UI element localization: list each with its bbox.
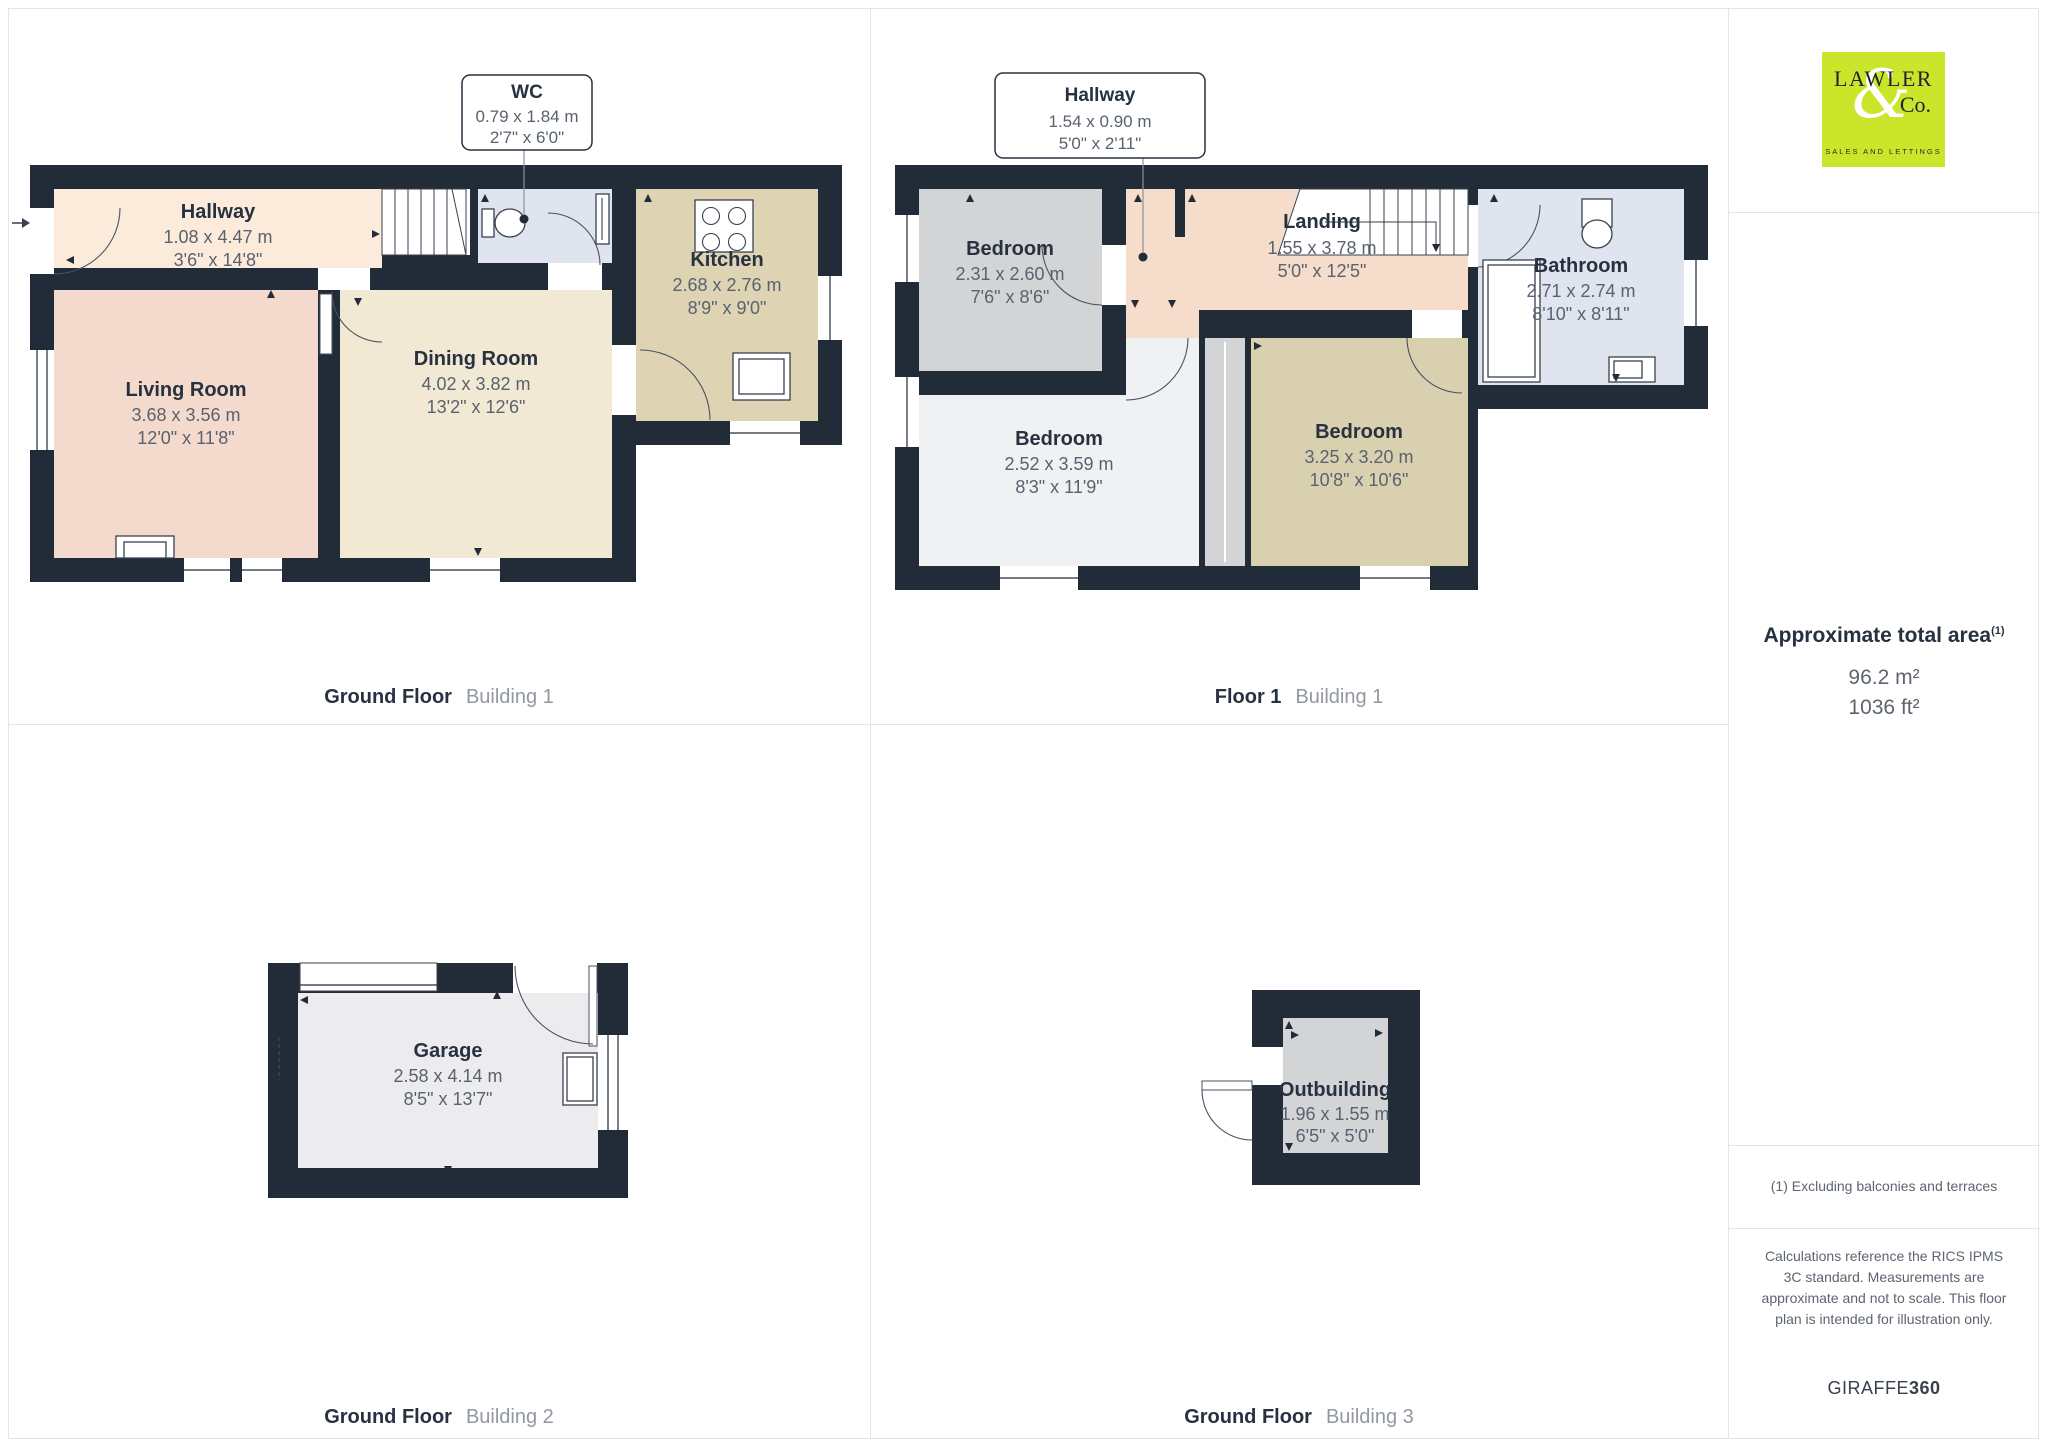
caption-building-label: Building 2 <box>466 1406 554 1429</box>
bathroom-door-opening <box>1468 205 1478 267</box>
divider <box>1728 1145 2040 1146</box>
room-metric: 2.58 x 4.14 m <box>393 1066 502 1086</box>
room-name: Living Room <box>125 379 246 401</box>
logo-co: Co. <box>1900 92 1931 118</box>
room-imperial: 8'9" x 9'0" <box>688 298 767 318</box>
plan-floor1-building1: Bedroom 2.31 x 2.60 m 7'6" x 8'6" Landin… <box>870 8 1728 724</box>
lawler-logo: & LAWLER Co. SALES AND LETTINGS <box>1822 52 1945 167</box>
divider <box>1728 1228 2040 1229</box>
window <box>30 350 54 450</box>
fixtures <box>563 1053 597 1105</box>
room-imperial: 13'2" x 12'6" <box>427 397 526 417</box>
room-imperial: 3'6" x 14'8" <box>174 250 263 270</box>
plan-ground-floor-building1: Hallway 1.08 x 4.47 m 3'6" x 14'8" Livin… <box>8 8 870 724</box>
disclaimer-text: Calculations reference the RICS IPMS 3C … <box>1758 1246 2010 1330</box>
room-name: Bedroom <box>1015 428 1103 450</box>
bedroom-door-nook <box>1126 338 1199 395</box>
room-metric: 2.52 x 3.59 m <box>1004 454 1113 474</box>
doors <box>1202 1081 1252 1140</box>
room-imperial: 6'5" x 5'0" <box>1296 1126 1375 1146</box>
divider <box>1728 212 2040 213</box>
callout-imperial: 2'7" x 6'0" <box>490 128 564 147</box>
window <box>598 1035 628 1130</box>
room-imperial: 5'0" x 12'5" <box>1278 261 1367 281</box>
room-metric: 2.31 x 2.60 m <box>955 264 1064 284</box>
room-name: Kitchen <box>690 249 763 271</box>
room-name: Bedroom <box>966 238 1054 260</box>
room-imperial: 8'5" x 13'7" <box>404 1089 493 1109</box>
caption-ground-floor-b1: Ground Floor Building 1 <box>8 686 870 709</box>
plan-ground-floor-building3: Outbuilding 1.96 x 1.55 m 6'5" x 5'0" <box>870 724 1728 1440</box>
caption-building-label: Building 1 <box>1295 686 1383 709</box>
callout-imperial: 5'0" x 2'11" <box>1059 134 1142 153</box>
callout-metric: 0.79 x 1.84 m <box>475 107 578 126</box>
callout-name: WC <box>511 82 543 103</box>
fireplace-icon <box>124 542 166 558</box>
door-leaf <box>320 294 332 354</box>
total-area-heading: Approximate total area(1) <box>1728 624 2040 648</box>
room-imperial: 8'3" x 11'9" <box>1015 477 1102 497</box>
caption-floor-label: Ground Floor <box>1184 1406 1312 1429</box>
caption-floor1-b1: Floor 1 Building 1 <box>870 686 1728 709</box>
sidebar: & LAWLER Co. SALES AND LETTINGS Approxim… <box>1728 8 2040 1439</box>
room-name: Bedroom <box>1315 421 1403 443</box>
total-area-m2: 96.2 m² <box>1728 666 2040 690</box>
caption-floor-label: Ground Floor <box>324 1406 452 1429</box>
room-metric: 1.55 x 3.78 m <box>1267 238 1376 258</box>
giraffe360-wordmark: GIRAFFE360 <box>1728 1378 2040 1399</box>
caption-ground-floor-b3: Ground Floor Building 3 <box>870 1406 1728 1429</box>
door-leaf <box>589 966 597 1046</box>
room-imperial: 10'8" x 10'6" <box>1310 470 1409 490</box>
total-area-ft2: 1036 ft² <box>1728 696 2040 720</box>
caption-building-label: Building 3 <box>1326 1406 1414 1429</box>
kitchen-door-opening <box>612 345 636 415</box>
footnote-text: (1) Excluding balconies and terraces <box>1728 1178 2040 1194</box>
room-labels: Outbuilding 1.96 x 1.55 m 6'5" x 5'0" <box>1279 1079 1391 1146</box>
caption-building-label: Building 1 <box>466 686 554 709</box>
logo-name: LAWLER <box>1822 66 1945 92</box>
room-name: Garage <box>414 1040 483 1062</box>
room-metric: 3.68 x 3.56 m <box>131 405 240 425</box>
room-name: Hallway <box>181 201 256 223</box>
stove-icon <box>695 200 753 252</box>
room-metric: 2.68 x 2.76 m <box>672 275 781 295</box>
footnote-marker: (1) <box>1991 625 2004 637</box>
room-name: Dining Room <box>414 348 538 370</box>
plan-ground-floor-building2: Garage 2.58 x 4.14 m 8'5" x 13'7" <box>8 724 870 1440</box>
door-leaf <box>1202 1081 1252 1090</box>
toilet-icon <box>495 209 525 237</box>
room-metric: 4.02 x 3.82 m <box>421 374 530 394</box>
dining-room-floor <box>340 290 612 558</box>
caption-ground-floor-b2: Ground Floor Building 2 <box>8 1406 870 1429</box>
caption-floor-label: Floor 1 <box>1215 686 1282 709</box>
room-imperial: 8'10" x 8'11" <box>1532 304 1629 324</box>
toilet-icon <box>482 209 494 237</box>
stairs-icon <box>382 189 466 255</box>
sink-icon <box>739 359 784 394</box>
room-name: Bathroom <box>1534 255 1628 277</box>
hallway-floor <box>1126 310 1199 338</box>
room-metric: 2.71 x 2.74 m <box>1526 281 1635 301</box>
room-metric: 1.96 x 1.55 m <box>1280 1104 1389 1124</box>
room-imperial: 7'6" x 8'6" <box>971 287 1050 307</box>
callout-metric: 1.54 x 0.90 m <box>1048 112 1151 131</box>
room-name: Outbuilding <box>1279 1079 1391 1101</box>
outbuilding-door-arc <box>1202 1090 1252 1140</box>
door-opening <box>513 963 597 993</box>
garage-door <box>300 963 437 991</box>
floorplan-sheet: Hallway 1.08 x 4.47 m 3'6" x 14'8" Livin… <box>0 0 2048 1448</box>
entry-door-opening <box>30 208 54 274</box>
logo-tagline: SALES AND LETTINGS <box>1822 147 1945 156</box>
caption-floor-label: Ground Floor <box>324 686 452 709</box>
entry-arrow-icon <box>12 218 30 228</box>
sink-icon <box>1582 220 1612 248</box>
room-metric: 3.25 x 3.20 m <box>1304 447 1413 467</box>
room-metric: 1.08 x 4.47 m <box>163 227 272 247</box>
sink-icon <box>567 1057 593 1101</box>
room-name: Landing <box>1283 211 1361 233</box>
callout-name: Hallway <box>1065 85 1136 106</box>
room-imperial: 12'0" x 11'8" <box>137 428 234 448</box>
